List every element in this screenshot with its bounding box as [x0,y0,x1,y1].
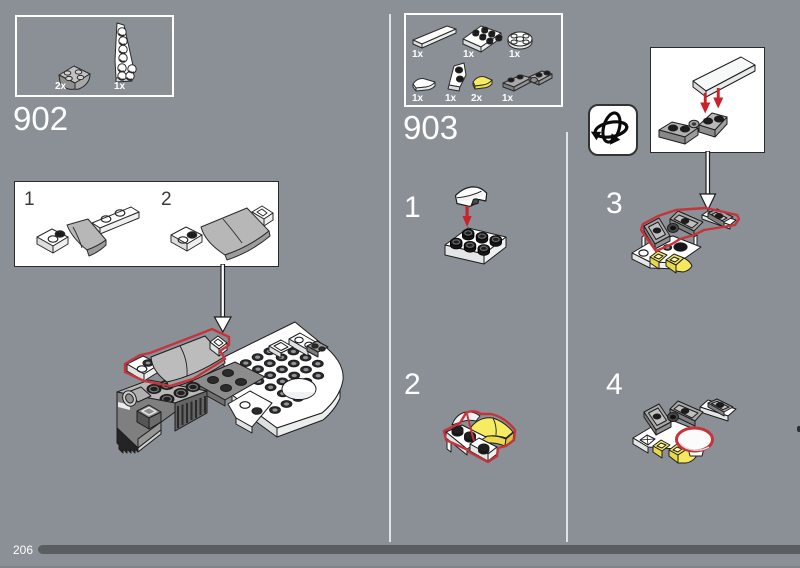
svg-text:1x: 1x [502,93,514,104]
svg-text:1x: 1x [463,49,475,60]
svg-text:1x: 1x [509,49,521,60]
svg-text:1x: 1x [114,81,126,92]
svg-text:1x: 1x [412,49,424,60]
svg-text:1x: 1x [445,93,457,104]
svg-text:1x: 1x [412,93,424,104]
svg-text:2x: 2x [471,93,483,104]
svg-text:2x: 2x [55,81,67,92]
